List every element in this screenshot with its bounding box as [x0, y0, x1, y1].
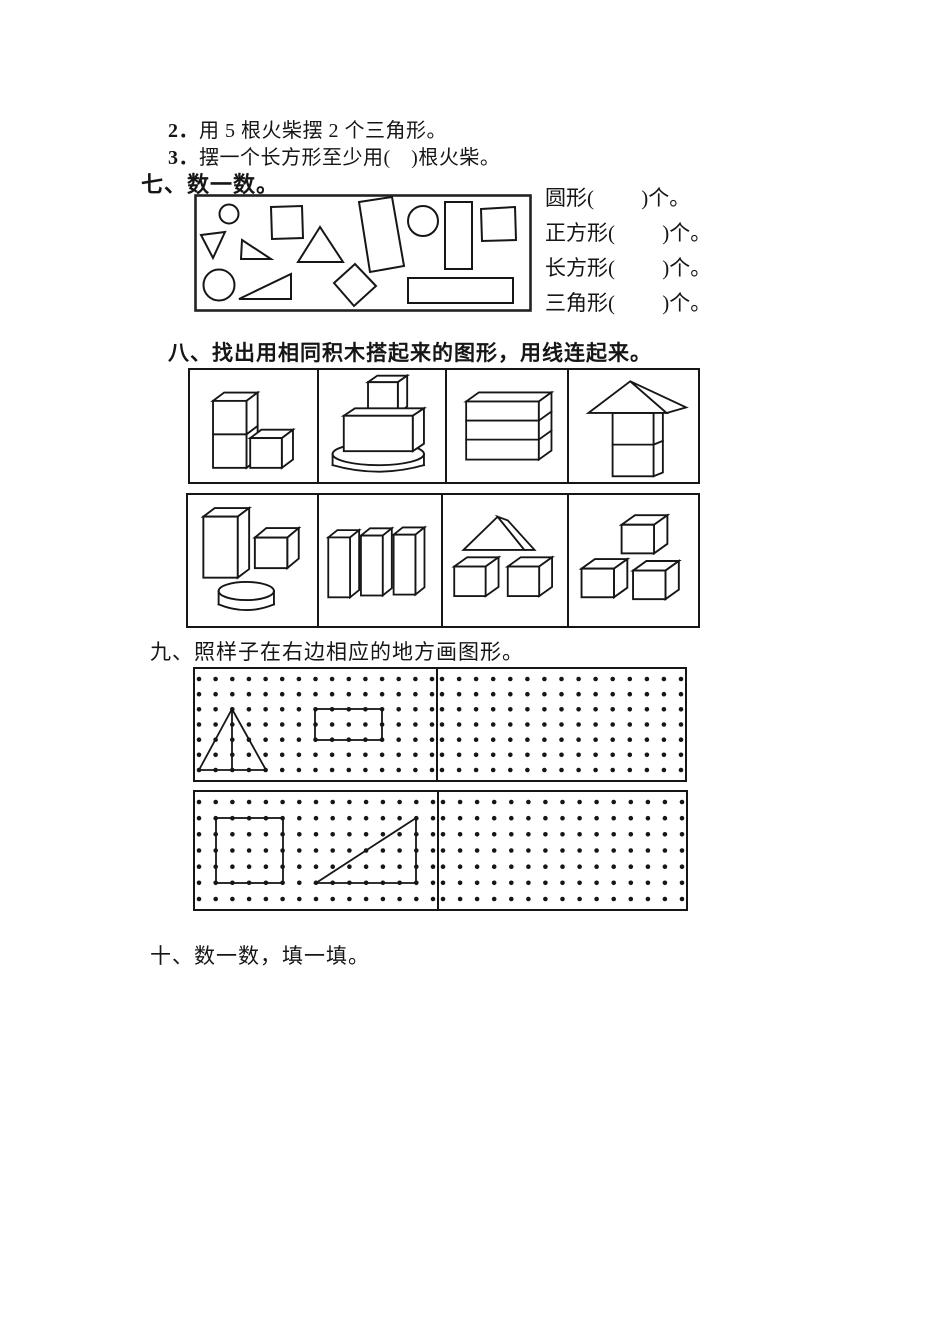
matchstick-item-2: 2．用 5 根火柴摆 2 个三角形。 [168, 114, 447, 143]
figure-three-stacked-slabs [448, 373, 566, 479]
matchstick-item-3: 3．摆一个长方形至少用( )根火柴。 [168, 141, 500, 170]
item-3-number: 3． [168, 147, 199, 169]
answer-line-circle: 圆形( )个。 [545, 182, 690, 212]
tall-cuboid [204, 508, 250, 578]
cuboid-2 [361, 528, 392, 595]
dots [440, 677, 684, 773]
slab-stack [466, 392, 551, 459]
answer-line-square: 正方形( )个。 [545, 217, 711, 247]
column-blocks [612, 409, 662, 476]
flat-cylinder [219, 582, 274, 610]
block-cell-three-cuboids [319, 495, 443, 626]
block-cell-three-cubes-l-shape [190, 370, 319, 482]
dots [441, 800, 685, 902]
answer-line-triangle: 三角形( )个。 [545, 287, 711, 317]
dot-grid-bottom [193, 790, 688, 911]
shape-count-answers: 圆形( )个。 正方形( )个。 长方形( )个。 三角形( )个。 [545, 182, 805, 322]
answer-line-rectangle: 长方形( )个。 [545, 252, 711, 282]
section9-heading: 九、照样子在右边相应的地方画图形。 [150, 636, 524, 666]
block-cell-three-slabs [447, 370, 569, 482]
blocks-table-row-1 [188, 368, 700, 484]
figure-three-tall-cuboids [321, 499, 439, 623]
roof-prism [588, 381, 686, 413]
cube-right [508, 557, 552, 596]
cube-left [454, 557, 498, 596]
triangular-prism [463, 516, 534, 549]
cube-bottom-left [581, 559, 627, 597]
worksheet-page: { "colors": { "ink": "#161616", "paper":… [0, 0, 950, 1344]
dot-grid-top [193, 667, 687, 782]
dot-panel-bottom-left [195, 792, 437, 909]
cube-bottom-right [633, 561, 679, 599]
dot-panel-top-left [195, 669, 436, 780]
dot-panel-bottom-right-empty [439, 792, 686, 909]
shape-count-box [194, 194, 532, 312]
figure-triangular-prism-two-cubes [445, 499, 565, 623]
block-cell-cuboid-cube-cylinder [188, 495, 319, 626]
block-cell-three-cubes [569, 495, 698, 626]
figure-cylinder-cuboid-cube-tower [321, 371, 443, 481]
figure-three-cubes-l-shape [192, 373, 314, 479]
block-cell-prism-two-cubes [443, 495, 569, 626]
cuboid-3 [394, 527, 425, 594]
item-2-text: 用 5 根火柴摆 2 个三角形。 [199, 120, 447, 142]
block-cell-house [569, 370, 698, 482]
dot-panel-top-right-empty [438, 669, 685, 780]
item-3-text: 摆一个长方形至少用( )根火柴。 [199, 147, 500, 169]
block-cell-cylinder-cuboid-cube [319, 370, 447, 482]
cube-top-left [214, 393, 259, 435]
section8-heading: 八、找出用相同积木搭起来的图形，用线连起来。 [168, 337, 652, 367]
item-2-number: 2． [168, 120, 199, 142]
blocks-table-row-2 [186, 493, 700, 628]
cube-bottom-right [251, 430, 294, 468]
figure-tall-cuboid-cube-cylinder [190, 497, 314, 624]
cuboid-1 [328, 530, 359, 597]
cube-top [621, 515, 667, 553]
figure-three-cubes-pyramid [572, 499, 696, 623]
section10-heading: 十、数一数，填一填。 [150, 940, 370, 970]
dots [197, 800, 436, 902]
cube [255, 528, 299, 568]
figure-house-roof-on-two-blocks [572, 372, 696, 480]
cuboid-middle [344, 408, 424, 451]
